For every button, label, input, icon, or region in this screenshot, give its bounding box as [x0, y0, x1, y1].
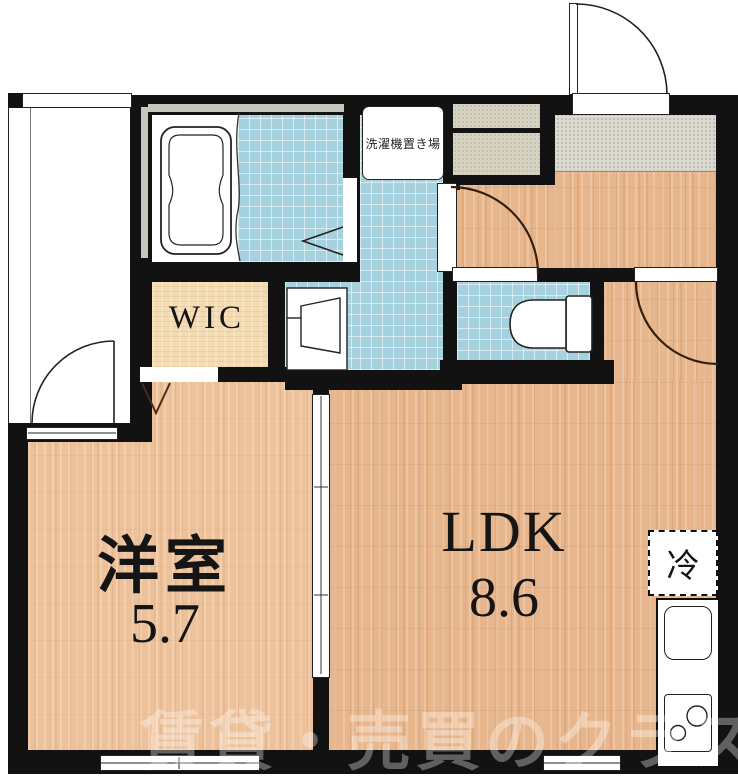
ldk-door-arc — [636, 282, 718, 364]
bath-folding-door-icon — [303, 227, 343, 255]
wic-label: WIC — [146, 300, 268, 337]
bath-deck-curve — [236, 113, 240, 261]
washbasin-icon — [287, 288, 347, 370]
laundry-label: 洗濯機置き場 — [365, 135, 440, 152]
bathtub-icon — [161, 127, 231, 254]
balcony-door-arc — [32, 341, 114, 423]
entry-door-arc — [576, 4, 667, 94]
toilet-door-arc — [451, 187, 538, 274]
floor-plan: 洗濯機置き場 冷 — [0, 0, 738, 782]
laundry-box: 洗濯機置き場 — [362, 106, 444, 180]
watermark: 賃貸・売買のクラスモ — [140, 702, 738, 782]
western-room-size: 5.7 — [55, 592, 275, 656]
refrigerator-label: 冷 — [667, 539, 700, 587]
toilet-icon — [510, 296, 592, 352]
sliding-door-marks — [314, 396, 328, 674]
wic-folding-door-icon — [142, 383, 170, 413]
ldk-size: 8.6 — [394, 566, 614, 630]
refrigerator-box: 冷 — [648, 530, 718, 596]
ldk-label: LDK — [394, 498, 614, 565]
